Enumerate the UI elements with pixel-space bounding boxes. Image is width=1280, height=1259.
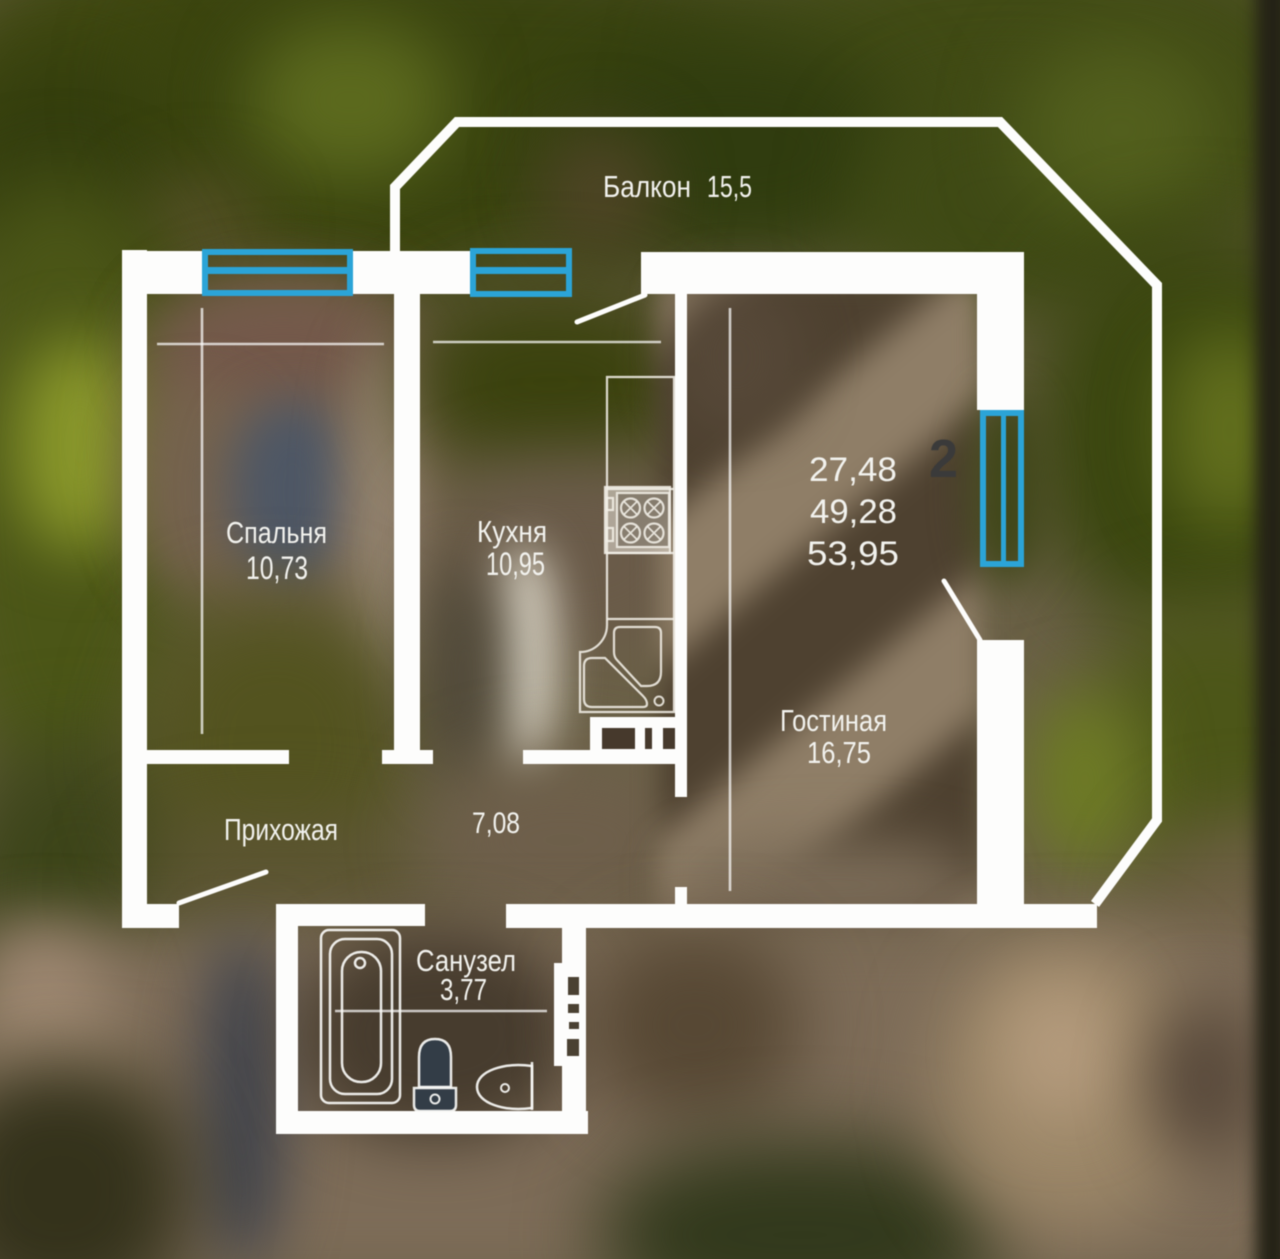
svg-text:27,48: 27,48 [809, 451, 897, 489]
svg-text:53,95: 53,95 [807, 535, 899, 573]
svg-text:10,95: 10,95 [486, 546, 545, 582]
svg-text:3,77: 3,77 [440, 972, 487, 1007]
svg-text:Прихожая: Прихожая [224, 812, 338, 847]
svg-text:16,75: 16,75 [807, 735, 871, 770]
svg-text:Спальня: Спальня [226, 515, 327, 550]
svg-text:49,28: 49,28 [810, 493, 897, 531]
svg-text:2: 2 [929, 429, 958, 489]
svg-text:Гостиная: Гостиная [780, 703, 887, 738]
svg-text:7,08: 7,08 [472, 807, 520, 840]
svg-text:10,73: 10,73 [246, 550, 308, 586]
svg-text:15,5: 15,5 [707, 169, 752, 204]
svg-text:Кухня: Кухня [477, 514, 547, 549]
svg-text:Балкон: Балкон [603, 169, 691, 204]
